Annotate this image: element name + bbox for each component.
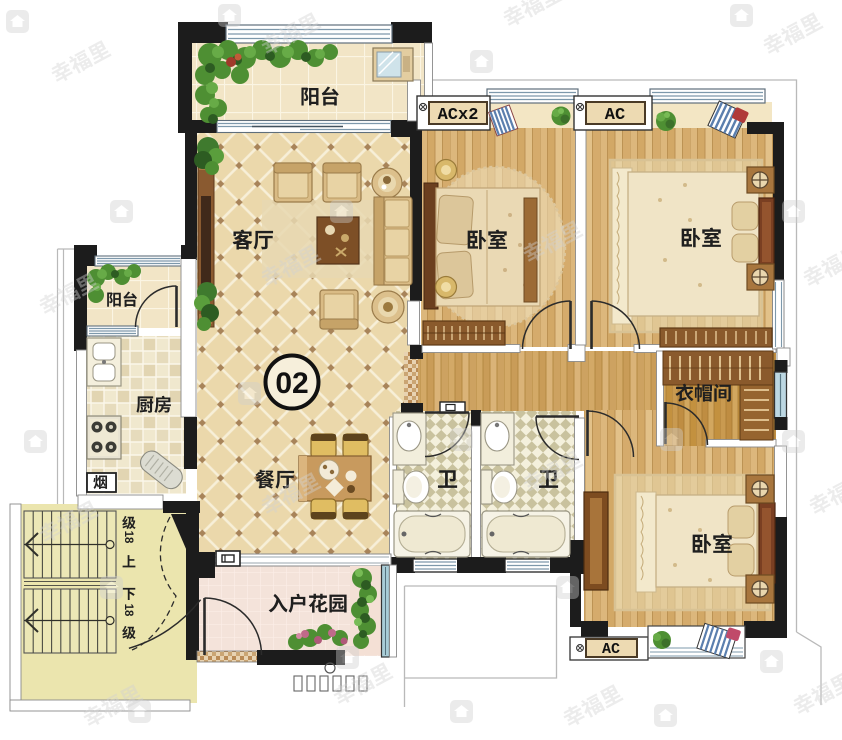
svg-text:AC: AC bbox=[602, 641, 620, 658]
svg-text:18: 18 bbox=[122, 604, 134, 617]
svg-text:ACx2: ACx2 bbox=[438, 106, 479, 125]
svg-text:AC: AC bbox=[605, 106, 625, 125]
svg-text:18: 18 bbox=[122, 531, 134, 544]
svg-text:02: 02 bbox=[275, 367, 308, 400]
